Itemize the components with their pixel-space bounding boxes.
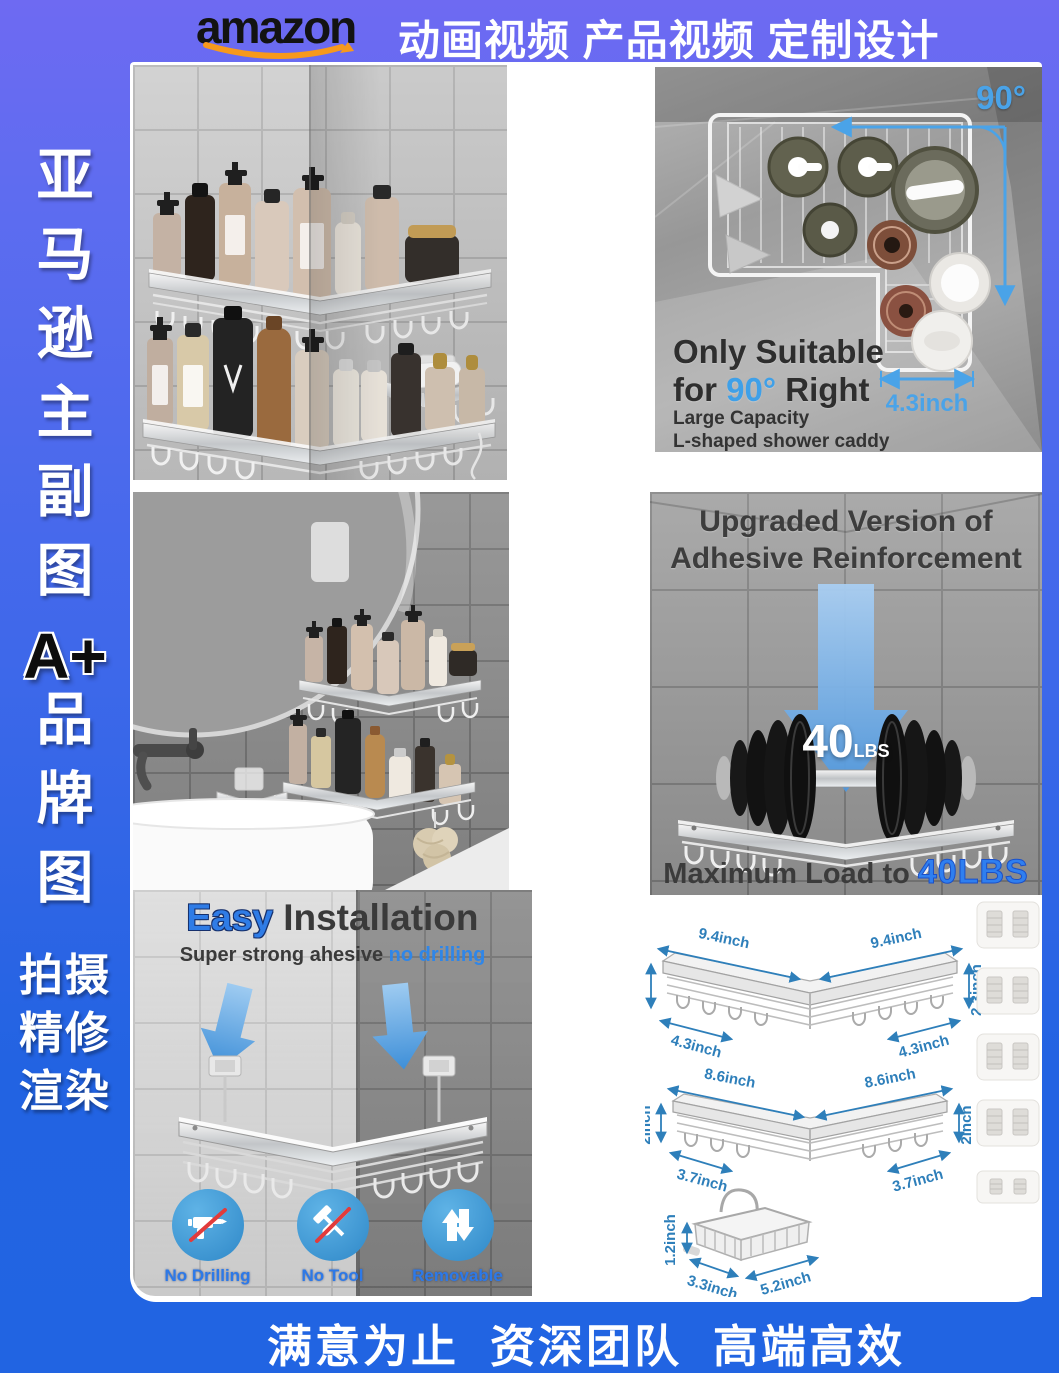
- dim-label: 2inch: [645, 1105, 654, 1144]
- sidebar-aplus-label: A+: [23, 624, 107, 688]
- dim-label: 2inch: [958, 1105, 975, 1144]
- weight-number: 40: [802, 715, 853, 767]
- white-basin: [133, 799, 374, 898]
- wall-corner-shade: [309, 65, 507, 480]
- diagram-soap-basket: 1.2inch 3.3inch 5.2inch: [662, 1190, 817, 1297]
- panel-subtitle: Super strong ahesive no drilling: [133, 944, 532, 967]
- title-line1: Upgraded Version of: [650, 504, 1042, 541]
- no-drilling-icon: [172, 1189, 244, 1261]
- badge-label: No Tool: [274, 1266, 392, 1286]
- sidebar-row: 拍摄: [19, 947, 111, 1005]
- subtitle-line1: Large Capacity: [673, 407, 889, 430]
- dim-label: 4.3inch: [886, 390, 969, 417]
- photo-corner-caddies: [133, 65, 507, 480]
- subtitle-plain: Super strong ahesive: [180, 944, 389, 966]
- sidebar-row: 渲染: [19, 1063, 111, 1121]
- subtitle-line2: L-shaped shower caddy: [673, 430, 889, 452]
- sidebar-char: 品: [37, 692, 94, 749]
- dim-label: 4.3inch: [669, 1032, 723, 1062]
- left-sidebar: 亚 马 逊 主 副 图 A+ 品 牌 图 拍摄 精修 渲染: [0, 62, 130, 1302]
- sidebar-char: 图: [37, 543, 94, 600]
- diagram-small-caddy: 8.6inch 8.6inch 2inch 2inch 3.7inch 3.7i…: [645, 1065, 975, 1195]
- sidebar-char: 图: [37, 850, 94, 907]
- dim-label: 1.2inch: [662, 1214, 679, 1266]
- sidebar-char: 牌: [37, 771, 94, 828]
- photo-easy-installation: Easy Installation Super strong ahesive n…: [133, 890, 532, 1296]
- adhesive-plates: [977, 902, 1039, 1203]
- badge-no-tool: No Tool: [274, 1189, 392, 1286]
- sidebar-char: 马: [37, 227, 94, 284]
- max-load-text: Maximum Load to 40LBS: [650, 853, 1042, 892]
- title-line2: Adhesive Reinforcement: [650, 541, 1042, 578]
- width-dimension: 4.3inch: [881, 371, 973, 417]
- panel-title: Only Suitable for 90° Right: [673, 333, 884, 408]
- title-line2-pre: for: [673, 371, 726, 408]
- subtitle-highlight: no drilling: [389, 944, 486, 966]
- bathroom-illustration: [133, 492, 509, 898]
- sidebar-char: 主: [37, 385, 94, 442]
- sidebar-char: 副: [37, 464, 94, 521]
- dim-label: 3.3inch: [685, 1272, 739, 1297]
- sidebar-char: 亚: [37, 148, 94, 205]
- feature-badges: No Drilling No Tool: [133, 1189, 532, 1286]
- sidebar-services: 拍摄 精修 渲染: [19, 947, 111, 1121]
- amazon-logo: amazon: [196, 2, 376, 60]
- dim-label: 9.4inch: [869, 925, 923, 952]
- panel-title: Easy Installation: [133, 898, 532, 939]
- arrow-weight-label: 40LBS: [650, 718, 1042, 764]
- dim-label: 8.6inch: [703, 1065, 757, 1092]
- weight-unit: LBS: [854, 741, 890, 761]
- empty-corner-caddy: [179, 1117, 487, 1197]
- badge-removable: Removable: [399, 1189, 517, 1286]
- dim-label: 3.7inch: [675, 1166, 729, 1196]
- dim-label: 3.7inch: [891, 1166, 945, 1196]
- wall-faucet: [133, 728, 204, 786]
- sidebar-char: 逊: [37, 306, 94, 363]
- max-load-prefix: Maximum Load to: [663, 858, 918, 890]
- no-tool-icon: [297, 1189, 369, 1261]
- title-line2-angle: 90°: [726, 371, 776, 408]
- photo-max-load: Upgraded Version of Adhesive Reinforceme…: [650, 492, 1042, 898]
- diagram-large-caddy: 9.4inch 9.4inch 2.3inch 2.3inch 4.3inch …: [645, 925, 985, 1062]
- removable-icon: [422, 1189, 494, 1261]
- panel-subtitle: Large Capacity L-shaped shower caddy: [673, 407, 889, 452]
- amazon-smile-icon: [202, 42, 362, 62]
- poster-page: amazon 动画视频 产品视频 定制设计 亚 马 逊 主 副 图 A+ 品 牌…: [0, 0, 1059, 1373]
- diagram-illustration: 9.4inch 9.4inch 2.3inch 2.3inch 4.3inch …: [645, 895, 1042, 1297]
- sidebar-row: 精修: [19, 1005, 111, 1063]
- install-arrow-right: [367, 981, 432, 1072]
- title-rest: Installation: [273, 897, 479, 938]
- badge-label: Removable: [399, 1266, 517, 1286]
- angle-label: 90°: [976, 79, 1026, 117]
- footer-slogan: 满意为止 资深团队 高端高效: [130, 1310, 1042, 1373]
- dim-label: 9.4inch: [697, 925, 751, 952]
- dim-label: 4.3inch: [897, 1032, 951, 1062]
- title-highlight: Easy: [187, 897, 273, 938]
- title-line1: Only Suitable: [673, 333, 884, 370]
- dimension-diagrams: 9.4inch 9.4inch 2.3inch 2.3inch 4.3inch …: [645, 895, 1042, 1297]
- photo-bathroom-scene: [133, 492, 509, 898]
- adhesive-tabs: [209, 1056, 455, 1122]
- title-line2-post: Right: [776, 371, 869, 408]
- content-card: 4.3inch 90° Only Suitable for 90° Right …: [130, 62, 1042, 1302]
- max-load-value: 40LBS: [918, 853, 1029, 891]
- top-banner: amazon 动画视频 产品视频 定制设计: [0, 0, 1059, 62]
- badge-no-drilling: No Drilling: [149, 1189, 267, 1286]
- panel-title: Upgraded Version of Adhesive Reinforceme…: [650, 504, 1042, 577]
- dim-label: 8.6inch: [863, 1065, 917, 1092]
- photo-top-view-90: 4.3inch 90° Only Suitable for 90° Right …: [655, 67, 1042, 452]
- badge-label: No Drilling: [149, 1266, 267, 1286]
- banner-services-text: 动画视频 产品视频 定制设计: [398, 7, 939, 68]
